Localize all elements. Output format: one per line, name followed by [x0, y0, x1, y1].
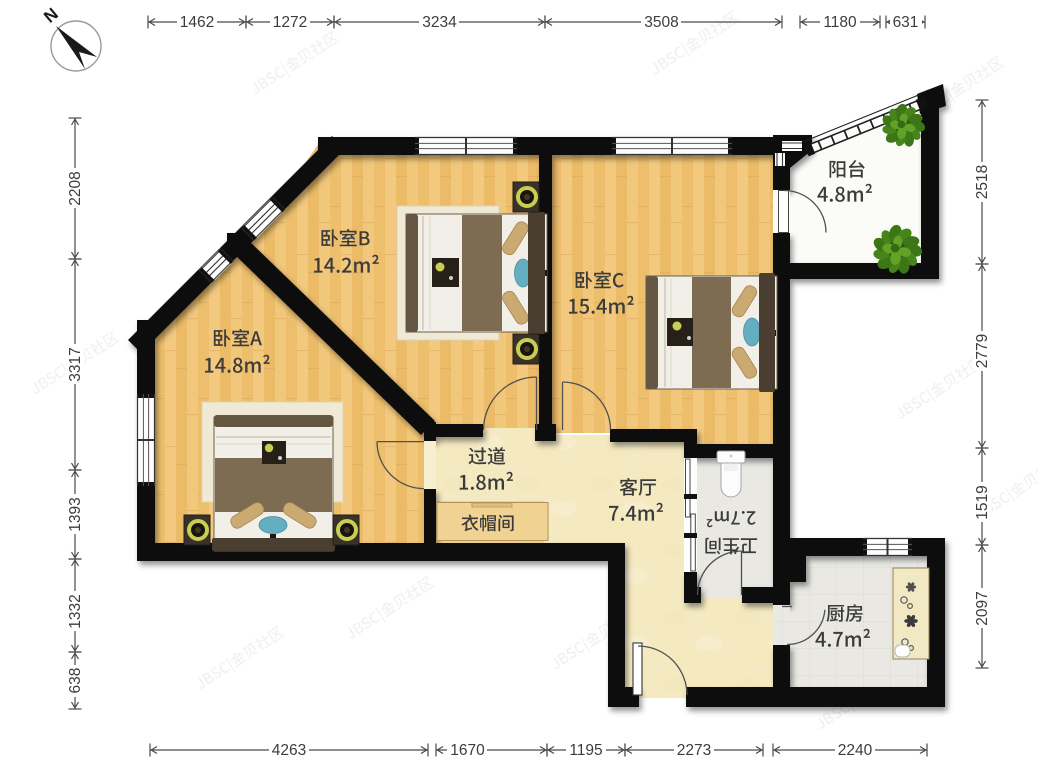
svg-text:1272: 1272	[273, 14, 307, 31]
svg-text:N: N	[40, 4, 62, 26]
svg-text:1519: 1519	[974, 485, 991, 519]
svg-text:2097: 2097	[974, 591, 991, 625]
svg-text:1332: 1332	[67, 594, 84, 628]
svg-text:3234: 3234	[422, 14, 457, 31]
svg-text:4263: 4263	[272, 742, 306, 759]
svg-text:2273: 2273	[677, 742, 711, 759]
svg-text:2779: 2779	[974, 334, 991, 368]
svg-text:1670: 1670	[450, 742, 485, 759]
svg-text:631: 631	[893, 14, 919, 31]
svg-text:2518: 2518	[974, 165, 991, 199]
svg-text:2208: 2208	[67, 171, 84, 205]
svg-text:1195: 1195	[569, 742, 602, 759]
svg-text:3508: 3508	[644, 14, 678, 31]
svg-text:2240: 2240	[838, 742, 873, 759]
svg-text:638: 638	[67, 668, 84, 694]
svg-text:1393: 1393	[67, 497, 84, 531]
svg-text:1462: 1462	[180, 14, 214, 31]
svg-text:3317: 3317	[67, 347, 84, 381]
svg-text:1180: 1180	[823, 14, 857, 31]
